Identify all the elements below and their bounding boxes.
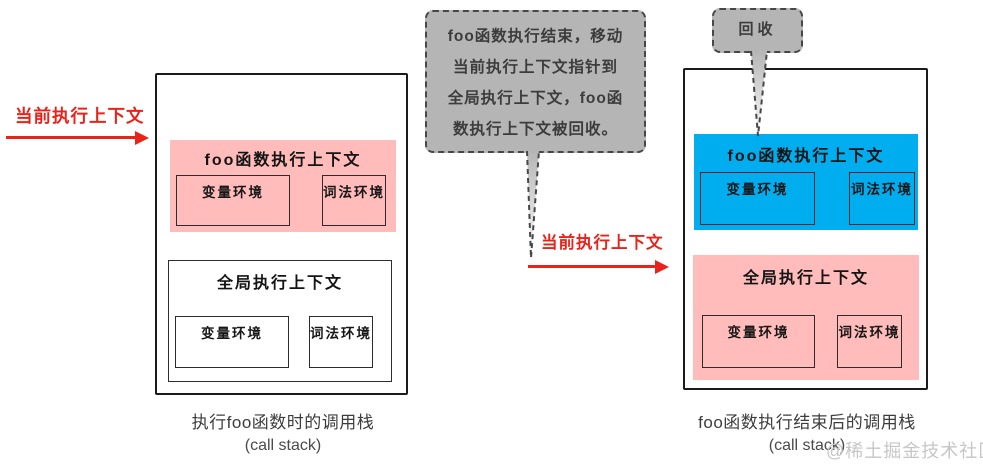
lexical-environment: 词法环境 bbox=[309, 316, 373, 368]
caption-text: foo函数执行结束后的调用栈 bbox=[663, 408, 951, 433]
caption-subtext: (call stack) bbox=[155, 437, 411, 455]
recycle-bubble-tail-icon bbox=[746, 50, 774, 140]
global-context-title: 全局执行上下文 bbox=[693, 264, 919, 288]
recycle-bubble: 回收 bbox=[712, 8, 803, 53]
variable-environment: 变量环境 bbox=[702, 315, 815, 368]
lexical-environment: 词法环境 bbox=[837, 315, 902, 368]
note-line: foo函数执行结束，移动 bbox=[431, 21, 640, 52]
note-line: 当前执行上下文指针到 bbox=[431, 52, 640, 83]
lexical-environment: 词法环境 bbox=[322, 175, 386, 226]
watermark: @稀土掘金技术社区 bbox=[826, 437, 983, 463]
variable-environment: 变量环境 bbox=[175, 316, 289, 368]
foo-context-right: foo函数执行上下文 变量环境 词法环境 bbox=[694, 134, 918, 230]
global-context-right: 全局执行上下文 变量环境 词法环境 bbox=[693, 255, 919, 380]
current-context-label-middle: 当前执行上下文 bbox=[541, 229, 664, 253]
caption-text: 执行foo函数时的调用栈 bbox=[155, 408, 411, 433]
foo-context-title: foo函数执行上下文 bbox=[694, 142, 918, 166]
variable-environment: 变量环境 bbox=[700, 172, 815, 225]
current-context-arrow-middle-icon bbox=[528, 265, 656, 268]
execution-context-diagram: 当前执行上下文 foo函数执行上下文 变量环境 词法环境 全局执行上下文 变量环… bbox=[0, 0, 983, 471]
note-line: 全局执行上下文，foo函 bbox=[431, 83, 640, 114]
call-stack-right: foo函数执行上下文 变量环境 词法环境 全局执行上下文 变量环境 词法环境 bbox=[683, 68, 928, 390]
left-stack-caption: 执行foo函数时的调用栈 (call stack) bbox=[155, 408, 411, 455]
global-context-left: 全局执行上下文 变量环境 词法环境 bbox=[168, 260, 392, 382]
foo-context-left: foo函数执行上下文 变量环境 词法环境 bbox=[170, 140, 396, 232]
note-line: 数执行上下文被回收。 bbox=[431, 114, 640, 145]
current-context-arrow-left-icon bbox=[6, 136, 136, 139]
lexical-environment: 词法环境 bbox=[849, 172, 915, 225]
foo-context-title: foo函数执行上下文 bbox=[170, 146, 396, 170]
note-bubble: foo函数执行结束，移动 当前执行上下文指针到 全局执行上下文，foo函 数执行… bbox=[425, 10, 646, 153]
global-context-title: 全局执行上下文 bbox=[169, 269, 391, 293]
current-context-label-left: 当前执行上下文 bbox=[15, 103, 145, 128]
variable-environment: 变量环境 bbox=[176, 175, 290, 226]
call-stack-left: foo函数执行上下文 变量环境 词法环境 全局执行上下文 变量环境 词法环境 bbox=[155, 73, 408, 395]
